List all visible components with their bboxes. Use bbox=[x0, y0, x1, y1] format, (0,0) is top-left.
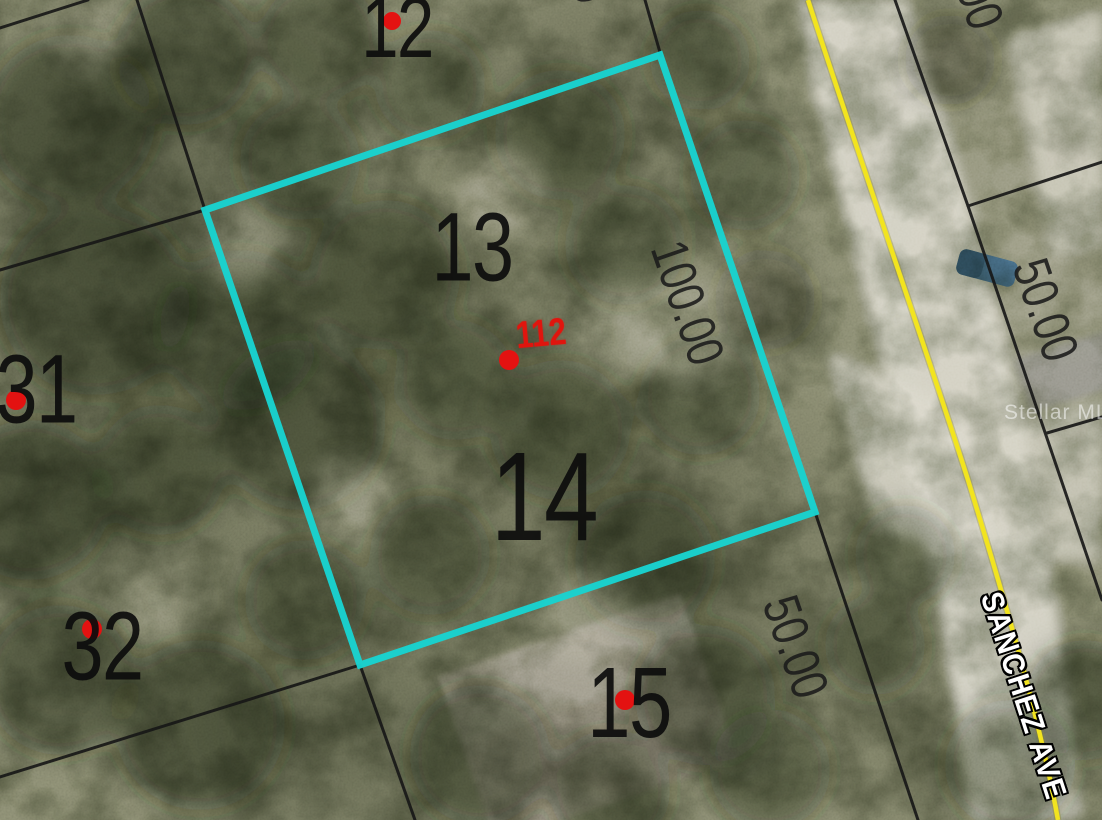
dimension-50ft-lower: 50.00 bbox=[753, 589, 836, 704]
dimension-100ft: 100.00 bbox=[642, 234, 733, 371]
lot-number-15: 15 bbox=[587, 653, 671, 753]
lot-number-31: 31 bbox=[0, 341, 77, 438]
street-label-sanchez-ave: SANCHEZ AVE bbox=[976, 588, 1072, 804]
dimension-50ft-top-partial: 50.00 bbox=[928, 0, 1011, 36]
stellar-mls-watermark: Stellar MLS bbox=[1004, 401, 1102, 425]
lot-number-14: 14 bbox=[491, 434, 597, 560]
subject-address-marker-label: 112 bbox=[514, 313, 567, 355]
labels-layer: 12 13 14 15 31 32 112 100.00 50.00 50.00… bbox=[0, 0, 1102, 820]
lot-number-32: 32 bbox=[61, 598, 142, 695]
dimension-50ft-upper-right: 50.00 bbox=[1003, 252, 1086, 367]
lot-number-12: 12 bbox=[361, 0, 433, 71]
aerial-parcel-map: 12 13 14 15 31 32 112 100.00 50.00 50.00… bbox=[0, 0, 1102, 820]
lot-number-13: 13 bbox=[431, 199, 512, 296]
dimension-50ft-top-center-partial: 50.00 bbox=[535, 0, 618, 10]
